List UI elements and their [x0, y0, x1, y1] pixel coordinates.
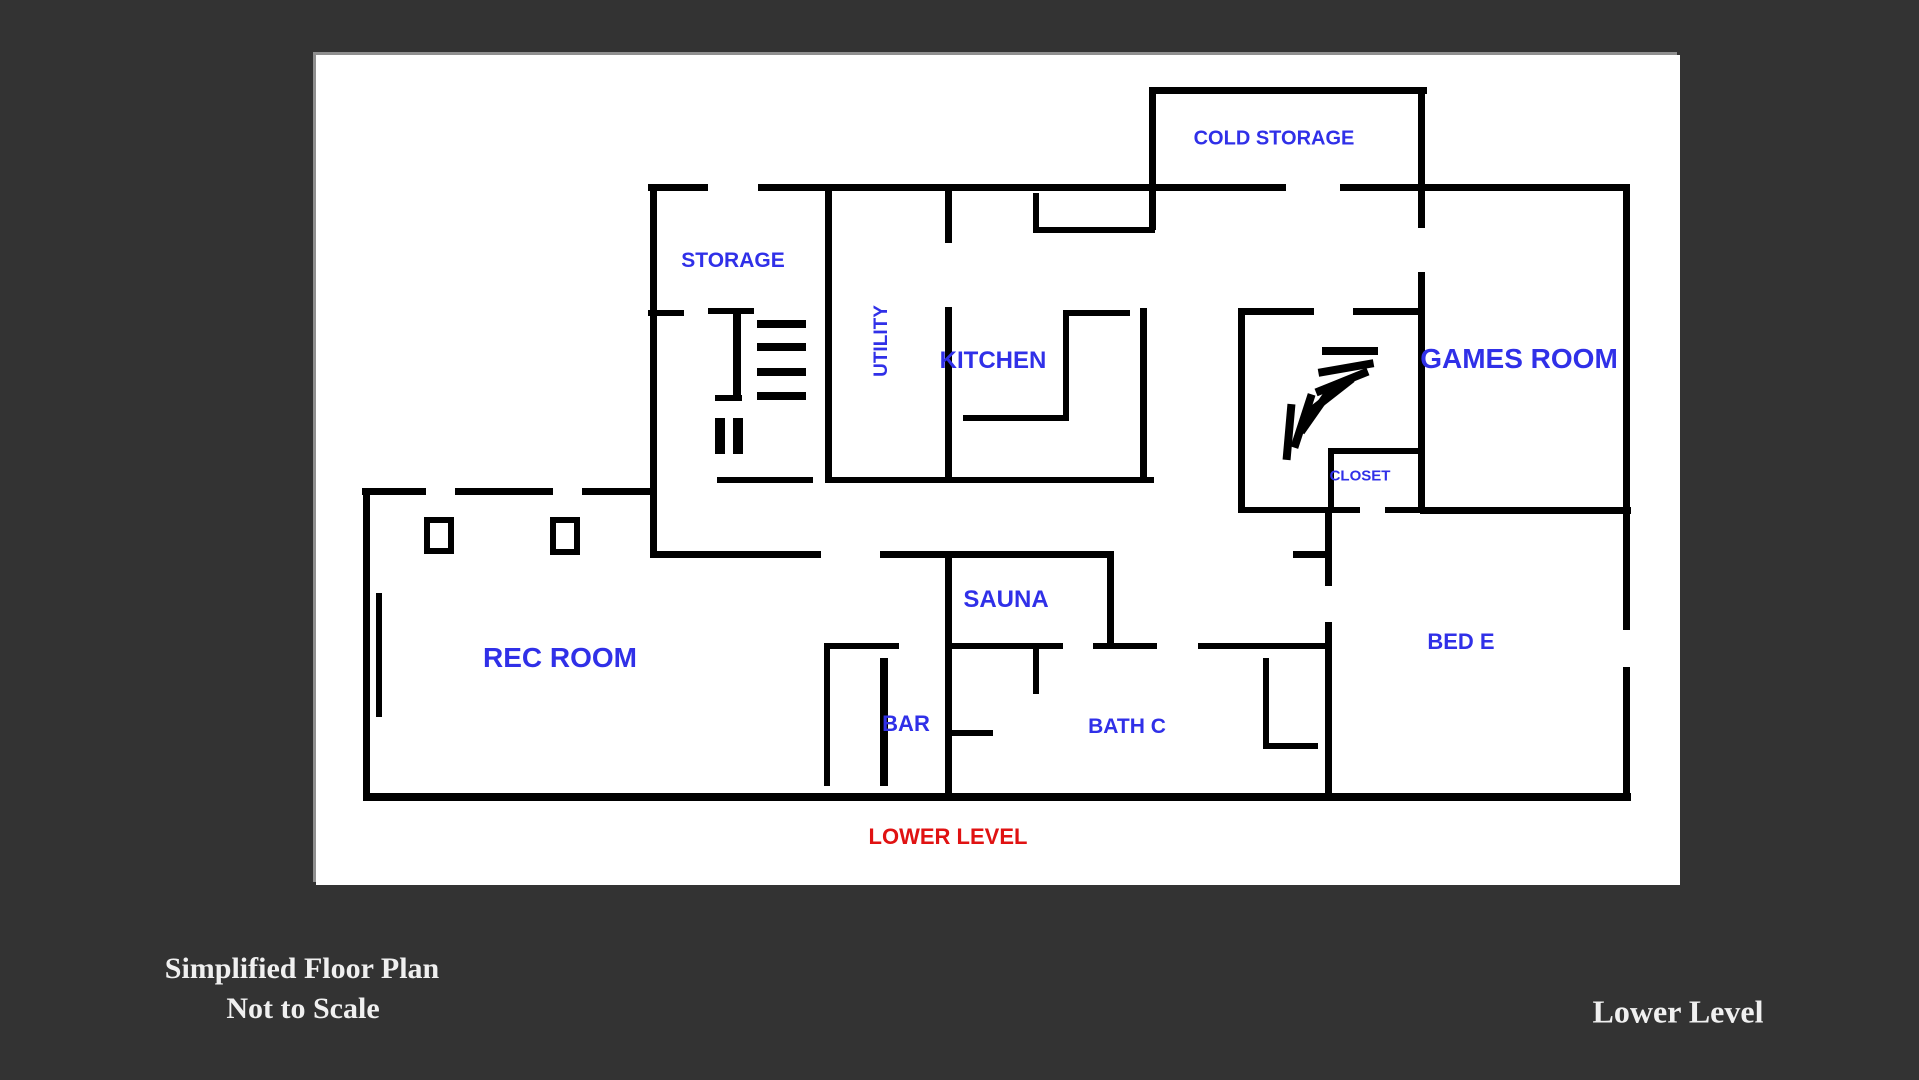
- staircase-tread: [757, 343, 806, 351]
- right-wall: [1623, 667, 1630, 801]
- bed-e-door-stub: [1293, 551, 1326, 558]
- staircase-rail: [733, 308, 741, 400]
- sauna-top-wall: [880, 551, 1110, 558]
- caption-footer-right: Lower Level: [1593, 994, 1764, 1031]
- rec-room-left-wall: [363, 488, 370, 801]
- storage-door-stub: [648, 310, 684, 316]
- post-symbol: [550, 517, 580, 555]
- door-mark: [715, 418, 725, 454]
- bed-e-left-wall: [1325, 507, 1332, 586]
- right-wall: [1623, 184, 1630, 630]
- rec-room-top-wall: [362, 488, 426, 495]
- closet-bottom-wall: [1385, 507, 1420, 513]
- shower-wall: [1263, 743, 1318, 749]
- storage-bottom-wall: [717, 477, 813, 483]
- room-label-rec-room: REC ROOM: [483, 642, 637, 674]
- room-label-bath-c: BATH C: [1088, 715, 1166, 739]
- bottom-wall: [363, 793, 1631, 801]
- post-symbol: [424, 517, 454, 554]
- level-label: LOWER LEVEL: [869, 824, 1028, 850]
- bath-top-wall: [1093, 643, 1157, 649]
- left-wall-upper: [650, 184, 657, 558]
- staircase-tread: [757, 320, 806, 328]
- closet-top-wall: [1328, 448, 1418, 454]
- top-wall: [758, 184, 1286, 191]
- floor-plan-page: STORAGE UTILITY KITCHEN COLD STORAGE GAM…: [0, 0, 1919, 1080]
- rec-room-top-wall: [455, 488, 553, 495]
- room-label-cold-storage: COLD STORAGE: [1194, 128, 1355, 151]
- storage-right-wall: [825, 184, 832, 483]
- kitchen-left-wall: [945, 307, 952, 483]
- caption-title-line2: Not to Scale: [226, 992, 379, 1026]
- fireplace-line: [376, 593, 382, 717]
- games-room-bottom-wall: [1420, 507, 1631, 514]
- stairwell-left-wall: [1238, 308, 1245, 513]
- top-wall: [648, 184, 708, 191]
- spiral-stair-tread: [1283, 404, 1296, 460]
- stairwell-top-wall: [1238, 308, 1314, 315]
- corridor-wall: [653, 551, 821, 558]
- caption-title-line1: Simplified Floor Plan: [165, 952, 439, 986]
- bed-e-left-wall: [1325, 622, 1332, 801]
- rec-room-top-wall: [582, 488, 651, 495]
- cold-storage-left-wall: [1149, 87, 1156, 230]
- bath-top-wall: [945, 643, 1063, 649]
- kitchen-right-wall: [1140, 308, 1147, 480]
- kitchen-counter: [1063, 310, 1130, 316]
- room-label-storage: STORAGE: [681, 249, 784, 273]
- cold-storage-right-wall: [1418, 87, 1425, 228]
- kitchen-counter: [1063, 310, 1069, 415]
- stairwell-right-wall: [1418, 272, 1425, 513]
- kitchen-bottom-wall: [825, 477, 1154, 483]
- room-label-sauna: SAUNA: [963, 586, 1048, 614]
- bath-top-wall: [1198, 643, 1325, 649]
- stairwell-top-wall: [1353, 308, 1418, 315]
- kitchen-left-wall: [945, 184, 952, 243]
- shower-wall: [1263, 658, 1269, 748]
- room-label-kitchen: KITCHEN: [940, 347, 1047, 375]
- staircase-tread: [757, 392, 806, 400]
- sauna-right-wall: [1107, 551, 1114, 649]
- spiral-stair-tread: [1322, 347, 1378, 355]
- room-label-bar: BAR: [882, 711, 930, 737]
- toilet-stub: [945, 730, 993, 736]
- room-label-bed-e: BED E: [1427, 629, 1494, 655]
- room-label-games-room: GAMES ROOM: [1420, 343, 1618, 375]
- sauna-left-wall: [945, 551, 952, 801]
- bar-top-wall: [824, 643, 899, 649]
- bar-left-wall: [824, 643, 830, 786]
- floor-plan-canvas: STORAGE UTILITY KITCHEN COLD STORAGE GAM…: [316, 55, 1680, 885]
- closet-bottom-wall: [1238, 507, 1360, 513]
- pantry-wall: [1033, 227, 1155, 233]
- cold-storage-top-wall: [1149, 87, 1427, 94]
- top-wall: [1340, 184, 1630, 191]
- room-label-utility: UTILITY: [871, 305, 893, 377]
- kitchen-counter: [963, 415, 1069, 421]
- bath-door-stub: [1033, 646, 1039, 694]
- door-mark: [733, 418, 743, 454]
- staircase-rail: [708, 308, 754, 314]
- room-label-closet: CLOSET: [1330, 468, 1391, 485]
- staircase-rail: [715, 395, 742, 401]
- staircase-tread: [757, 368, 806, 376]
